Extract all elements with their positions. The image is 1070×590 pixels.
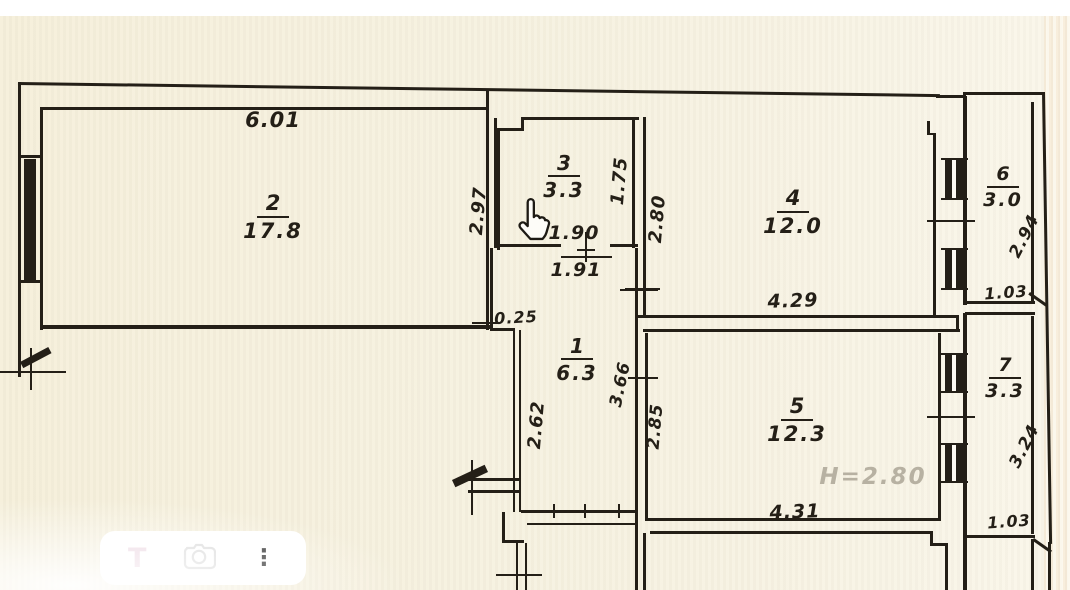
- wall-segment: [519, 330, 521, 512]
- wall-segment: [577, 249, 595, 251]
- wall-segment: [40, 107, 43, 330]
- wall-segment: [496, 574, 542, 576]
- wall-segment: [963, 92, 1045, 95]
- wall-segment: [527, 523, 637, 525]
- wall-segment: [628, 377, 658, 379]
- dim-2-62: 2.62: [526, 399, 548, 450]
- room-5-label: 5 12.3: [765, 396, 829, 445]
- wall-segment: [637, 315, 959, 318]
- room-5-number: 5: [781, 396, 814, 421]
- room-1-label: 1 6.3: [547, 336, 607, 383]
- room-7-number: 7: [989, 356, 1020, 379]
- dim-2-85: 2.85: [645, 401, 666, 452]
- ceiling-height-note: H=2.80: [818, 466, 928, 489]
- wall-segment: [635, 248, 638, 590]
- wall-segment: [24, 159, 36, 281]
- dim-1-90: 1.90: [543, 224, 605, 243]
- wall-segment: [965, 312, 1035, 315]
- wall-segment: [41, 325, 491, 329]
- room-4-number: 4: [777, 188, 810, 213]
- wall-segment: [468, 490, 520, 493]
- room-1-area: 6.3: [547, 363, 607, 383]
- wall-segment: [927, 220, 975, 222]
- wall-segment: [618, 504, 620, 518]
- dim-4-29: 4.29: [762, 291, 825, 312]
- wall-segment: [0, 371, 66, 373]
- dim-4-31: 4.31: [764, 502, 827, 523]
- wall-segment: [497, 128, 500, 250]
- room-1-number: 1: [561, 336, 593, 360]
- wall-segment: [643, 329, 960, 332]
- window-symbol: [941, 443, 968, 483]
- wall-segment: [468, 478, 520, 481]
- wall-segment: [471, 460, 473, 515]
- wall-segment: [610, 244, 638, 247]
- room-5-area: 12.3: [765, 424, 829, 445]
- room-3-number: 3: [548, 153, 580, 177]
- wall-segment: [933, 133, 936, 318]
- dim-1-03-lower: 1.03: [984, 512, 1035, 531]
- wall-segment: [965, 535, 1035, 538]
- room-2-area: 17.8: [241, 221, 305, 242]
- wall-segment: [516, 543, 518, 590]
- room-7-area: 3.3: [975, 382, 1035, 401]
- room-2-number: 2: [257, 193, 290, 218]
- room-3-label: 3 3.3: [533, 153, 595, 200]
- wall-segment: [502, 540, 524, 543]
- window-symbol: [941, 158, 968, 200]
- window-symbol: [941, 353, 968, 393]
- window-symbol: [941, 248, 968, 290]
- wall-segment: [945, 543, 948, 590]
- wall-segment: [497, 128, 523, 131]
- wall-segment: [927, 416, 975, 418]
- room-4-area: 12.0: [760, 216, 826, 237]
- room-2-label: 2 17.8: [241, 193, 305, 242]
- room-4-label: 4 12.0: [760, 188, 826, 237]
- room-6-number: 6: [987, 165, 1018, 188]
- photo-corner-glare: [0, 500, 400, 590]
- wall-segment: [643, 533, 646, 590]
- wall-segment: [490, 328, 515, 331]
- wall-segment: [584, 504, 586, 518]
- dim-1-03-upper: 1.03: [981, 283, 1032, 302]
- hand-pointer-icon: [512, 197, 552, 244]
- wall-segment: [525, 543, 527, 590]
- dim-0-25: 0.25: [492, 309, 541, 327]
- wall-segment: [643, 117, 646, 318]
- wall-segment: [1031, 539, 1034, 590]
- hand-pointer-cursor: [512, 197, 552, 248]
- wall-segment: [650, 531, 932, 534]
- dim-top-width: 6.01: [228, 110, 318, 131]
- wall-segment: [620, 289, 658, 291]
- wall-segment: [963, 539, 967, 590]
- room-7-label: 7 3.3: [975, 356, 1035, 401]
- wall-segment: [18, 155, 42, 158]
- wall-segment: [553, 504, 555, 518]
- photo-viewer-screen: 6.01 2.97 1.75 1.90 1.91 2.80 4.29 2.94 …: [0, 0, 1070, 590]
- room-6-area: 3.0: [973, 191, 1033, 210]
- wall-segment: [18, 82, 21, 377]
- wall-segment: [502, 512, 505, 542]
- wall-segment: [963, 313, 967, 539]
- dim-2-97: 2.97: [468, 184, 490, 237]
- wall-segment: [632, 117, 635, 248]
- dim-1-91: 1.91: [546, 261, 606, 280]
- wall-segment: [956, 315, 959, 332]
- wall-segment: [936, 95, 966, 98]
- room-6-label: 6 3.0: [973, 165, 1033, 210]
- wall-segment: [521, 117, 639, 120]
- dim-1-75: 1.75: [609, 155, 631, 206]
- dim-2-80: 2.80: [647, 193, 669, 244]
- wall-segment: [513, 330, 515, 512]
